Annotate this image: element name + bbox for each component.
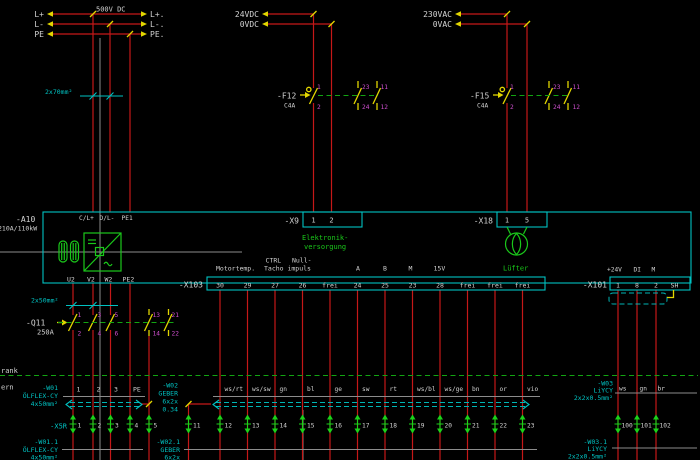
- terminal-icon: [272, 419, 279, 429]
- bus-arrow-icon: [47, 11, 53, 17]
- bottom-terminal-number: 16: [335, 423, 343, 430]
- boundary-label: ern: [1, 384, 14, 392]
- terminal-icon: [146, 419, 153, 429]
- dc-bus-label: L-: [34, 20, 44, 29]
- bottom-terminal-number: 12: [225, 423, 233, 430]
- dc-voltage-label: 500V DC: [96, 6, 126, 14]
- right-terminal-number: 100: [622, 423, 633, 430]
- terminal-icon: [382, 419, 389, 429]
- cable-chevron: [213, 400, 219, 409]
- a10-terminal: W2: [105, 276, 113, 284]
- dc-bus-label: L-.: [150, 20, 164, 29]
- w01-core-label: PE: [133, 386, 141, 394]
- dc-bus-label: PE: [34, 30, 44, 39]
- signal-label: Tacho impuls: [264, 265, 311, 273]
- core-color-label: vio: [527, 386, 538, 393]
- w02-size: 0.34: [162, 406, 178, 414]
- f12-rating: C4A: [284, 103, 295, 110]
- w01-name: -W01: [42, 384, 58, 392]
- terminal-icon: [653, 419, 660, 429]
- x5r-terminal-number: 4: [135, 423, 139, 430]
- terminal-icon: [185, 419, 192, 429]
- terminal-icon: [615, 419, 622, 429]
- terminal-icon: [244, 419, 251, 429]
- cable-size-label: 2x50mm²: [31, 297, 58, 305]
- contact-number: 2: [78, 331, 82, 338]
- x103-terminal-number: 28: [436, 282, 444, 290]
- terminal-icon: [437, 419, 444, 429]
- w01-core-label: 1: [77, 386, 81, 394]
- v230-label: 0VAC: [433, 20, 452, 29]
- v230-label: 230VAC: [423, 10, 452, 19]
- contact-number: 11: [381, 84, 389, 91]
- terminal-icon: [634, 419, 641, 429]
- q11-name: -Q11: [26, 319, 45, 328]
- x101-terminal-number: 2: [654, 282, 658, 290]
- bottom-terminal-number: 14: [280, 423, 288, 430]
- a10-terminal: PE1: [122, 215, 133, 222]
- signal-label: Null-: [292, 257, 312, 265]
- bottom-terminal-number: 21: [472, 423, 480, 430]
- w02-1-name: -W02.1: [157, 438, 181, 446]
- contact-number: 2: [317, 104, 321, 111]
- core-color-label: br: [658, 386, 666, 393]
- w02-1-size: 6x2x: [164, 454, 180, 460]
- x101-terminal-number: SH: [671, 282, 679, 290]
- a10-name: -A10: [16, 215, 35, 224]
- wire-corner-ticks: [90, 11, 530, 407]
- core-color-label: or: [500, 386, 508, 393]
- f15-name: -F15: [470, 92, 489, 101]
- x5r-terminal-number: 2: [98, 423, 102, 430]
- w01-core-label: 3: [114, 386, 118, 394]
- core-color-label: ws/rt: [225, 386, 244, 393]
- terminal-icon: [90, 419, 97, 429]
- x103-terminal-number: frei: [487, 282, 503, 290]
- core-color-label: rt: [390, 386, 398, 393]
- x5r-terminal-number: 5: [154, 423, 158, 430]
- bottom-terminal-number: 17: [362, 423, 370, 430]
- x18-terminal: 1: [505, 217, 509, 225]
- w01-1-name: -W01.1: [35, 438, 59, 446]
- signal-label: +24V: [607, 267, 622, 274]
- w01-1-size: 4x50mm²: [31, 454, 58, 460]
- signal-label: M: [409, 265, 413, 273]
- terminal-icon: [492, 419, 499, 429]
- x103-terminal-number: 30: [216, 282, 224, 290]
- core-color-label: ge: [335, 386, 343, 393]
- device-boxes: [43, 212, 691, 304]
- a10-terminal: U2: [67, 276, 75, 284]
- terminal-icon: [70, 419, 77, 429]
- right-terminal-number: 101: [641, 423, 652, 430]
- contact-number: 4: [98, 331, 102, 338]
- x103-terminal-number: 23: [409, 282, 417, 290]
- contact-number: 5: [115, 312, 119, 319]
- cable-chevron: [66, 400, 72, 409]
- signal-label: DI: [634, 267, 642, 274]
- v24-label: 24VDC: [235, 10, 259, 19]
- contact-number: 13: [153, 312, 161, 319]
- dc-bus-label: PE.: [150, 30, 164, 39]
- core-color-label: gn: [280, 386, 288, 393]
- contact-number: 3: [98, 312, 102, 319]
- switch-symbols: [47, 11, 674, 407]
- x101-name: -X101: [583, 281, 607, 290]
- contact-number: 23: [362, 84, 370, 91]
- bottom-terminal-number: 22: [500, 423, 508, 430]
- x103-terminal-number: frei: [460, 282, 476, 290]
- bottom-terminal-number: 13: [252, 423, 260, 430]
- bus-arrow-icon: [47, 31, 53, 37]
- terminal-icon: [464, 419, 471, 429]
- bottom-terminal-number: 23: [527, 423, 535, 430]
- x103-terminal-number: 24: [354, 282, 362, 290]
- terminal-icon: [299, 419, 306, 429]
- f15-rating: C4A: [477, 103, 488, 110]
- bottom-terminal-number: 19: [417, 423, 425, 430]
- contact-number: 22: [172, 331, 180, 338]
- contact-number: 12: [573, 104, 581, 111]
- cable-chevron: [136, 400, 142, 409]
- x18-name: -X18: [474, 217, 493, 226]
- terminal-icon: [354, 419, 361, 429]
- signal-label: CTRL: [266, 257, 282, 265]
- bottom-terminal-number: 20: [445, 423, 453, 430]
- v24-label: 0VDC: [240, 20, 259, 29]
- fan-icon: [506, 227, 528, 255]
- x103-terminal-number: 29: [244, 282, 252, 290]
- signal-label: B: [383, 265, 387, 273]
- core-color-label: bl: [307, 386, 315, 393]
- core-color-label: gn: [640, 386, 648, 393]
- f12-name: -F12: [277, 92, 296, 101]
- core-color-label: ws/sw: [252, 386, 271, 393]
- w03-1-size: 2x2x0.5mm²: [568, 453, 607, 460]
- x5r-name: -X5R: [50, 423, 68, 431]
- signal-label: M: [652, 267, 656, 274]
- x103-terminal-number: 27: [271, 282, 279, 290]
- contact-number: 12: [381, 104, 389, 111]
- x5r-terminal-number: 3: [115, 423, 119, 430]
- core-color-label: sw: [362, 386, 370, 393]
- a10-terminal: D/L-: [100, 215, 115, 222]
- x103-terminal-number: 25: [381, 282, 389, 290]
- x103-terminal-number: frei: [322, 282, 338, 290]
- cable-size-label: 2x70mm²: [45, 88, 72, 96]
- w03-size: 2x2x0.5mm²: [574, 394, 613, 402]
- bus-arrow-icon: [47, 21, 53, 27]
- w01-core-label: 2: [97, 386, 101, 394]
- x103-name: -X103: [179, 281, 203, 290]
- signal-label: A: [356, 265, 360, 273]
- terminal-icon: [127, 419, 134, 429]
- x5r-terminal-number: 1: [78, 423, 82, 430]
- w02-size: 6x2x: [162, 398, 178, 406]
- bus-arrow-icon: [141, 31, 147, 37]
- core-color-label: ws/ge: [445, 386, 464, 393]
- w01-type: ÖLFLEX-CY: [23, 391, 58, 400]
- shield-drain-wire: [667, 290, 674, 298]
- bus-arrow-icon: [262, 11, 268, 17]
- terminal-icon: [519, 419, 526, 429]
- terminal-icon: [217, 419, 224, 429]
- terminal-icon: [107, 419, 114, 429]
- a10-box: [43, 212, 691, 283]
- contact-number: 24: [362, 104, 370, 111]
- w02-name: -W02: [162, 382, 178, 390]
- bottom-terminal-number: 11: [193, 423, 201, 430]
- boundary-label: rank: [1, 367, 19, 375]
- dc-bus-label: L+.: [150, 10, 164, 19]
- cable-chevron: [523, 400, 529, 409]
- right-terminal-number: 102: [660, 423, 671, 430]
- contact-number: 2: [510, 104, 514, 111]
- core-color-label: bn: [472, 386, 480, 393]
- contact-number: 23: [553, 84, 561, 91]
- x9-terminal: 2: [329, 217, 333, 225]
- dc-bus-label: L+: [34, 10, 44, 19]
- bottom-terminal-number: 15: [307, 423, 315, 430]
- contact-number: 6: [115, 331, 119, 338]
- core-color-label: ws: [619, 386, 627, 393]
- contact-number: 21: [172, 312, 180, 319]
- schematic-page: L+ L- PE L+. L-. PE. 500V DC 24VDC 0VDC …: [0, 0, 700, 460]
- x9-caption: versorgung: [304, 243, 346, 251]
- x9-caption: Elektronik-: [302, 234, 348, 242]
- x18-terminal: 5: [525, 217, 529, 225]
- bus-arrow-icon: [455, 11, 461, 17]
- x9-name: -X9: [285, 217, 300, 226]
- x101-terminal-number: 1: [616, 282, 620, 290]
- x18-caption: Lüfter: [503, 265, 528, 273]
- a10-terminal: C/L+: [79, 215, 94, 222]
- bus-arrow-icon: [141, 21, 147, 27]
- bus-arrow-icon: [141, 11, 147, 17]
- w01-size: 4x50mm²: [31, 400, 58, 408]
- bus-arrow-icon: [262, 21, 268, 27]
- x9-terminal: 1: [311, 217, 315, 225]
- w02-type: GEBER: [158, 390, 178, 398]
- contact-number: 14: [153, 331, 161, 338]
- contact-number: 11: [573, 84, 581, 91]
- contact-number: 1: [510, 84, 514, 91]
- bus-arrow-icon: [455, 21, 461, 27]
- schematic-canvas: L+ L- PE L+. L-. PE. 500V DC 24VDC 0VDC …: [0, 0, 700, 460]
- x101-terminal-number: 8: [635, 282, 639, 290]
- terminal-icon: [409, 419, 416, 429]
- a10-terminal: V2: [87, 276, 95, 284]
- bottom-terminal-number: 18: [390, 423, 398, 430]
- terminal-icon: [327, 419, 334, 429]
- contact-number: 1: [317, 84, 321, 91]
- generated-labels: 30292726frei24252328freifreifrei182SH123…: [77, 84, 679, 430]
- core-color-label: ws/bl: [417, 386, 436, 393]
- x103-terminal-number: 26: [299, 282, 307, 290]
- signal-label: 15V: [434, 265, 446, 273]
- x103-terminal-number: frei: [515, 282, 531, 290]
- q11-rating: 250A: [37, 329, 55, 337]
- contact-number: 1: [78, 312, 82, 319]
- a10-rating: 210A/110kW: [0, 225, 37, 233]
- signal-label: Motortemp.: [216, 265, 255, 273]
- a10-terminal: PE2: [123, 276, 135, 284]
- contact-number: 24: [553, 104, 561, 111]
